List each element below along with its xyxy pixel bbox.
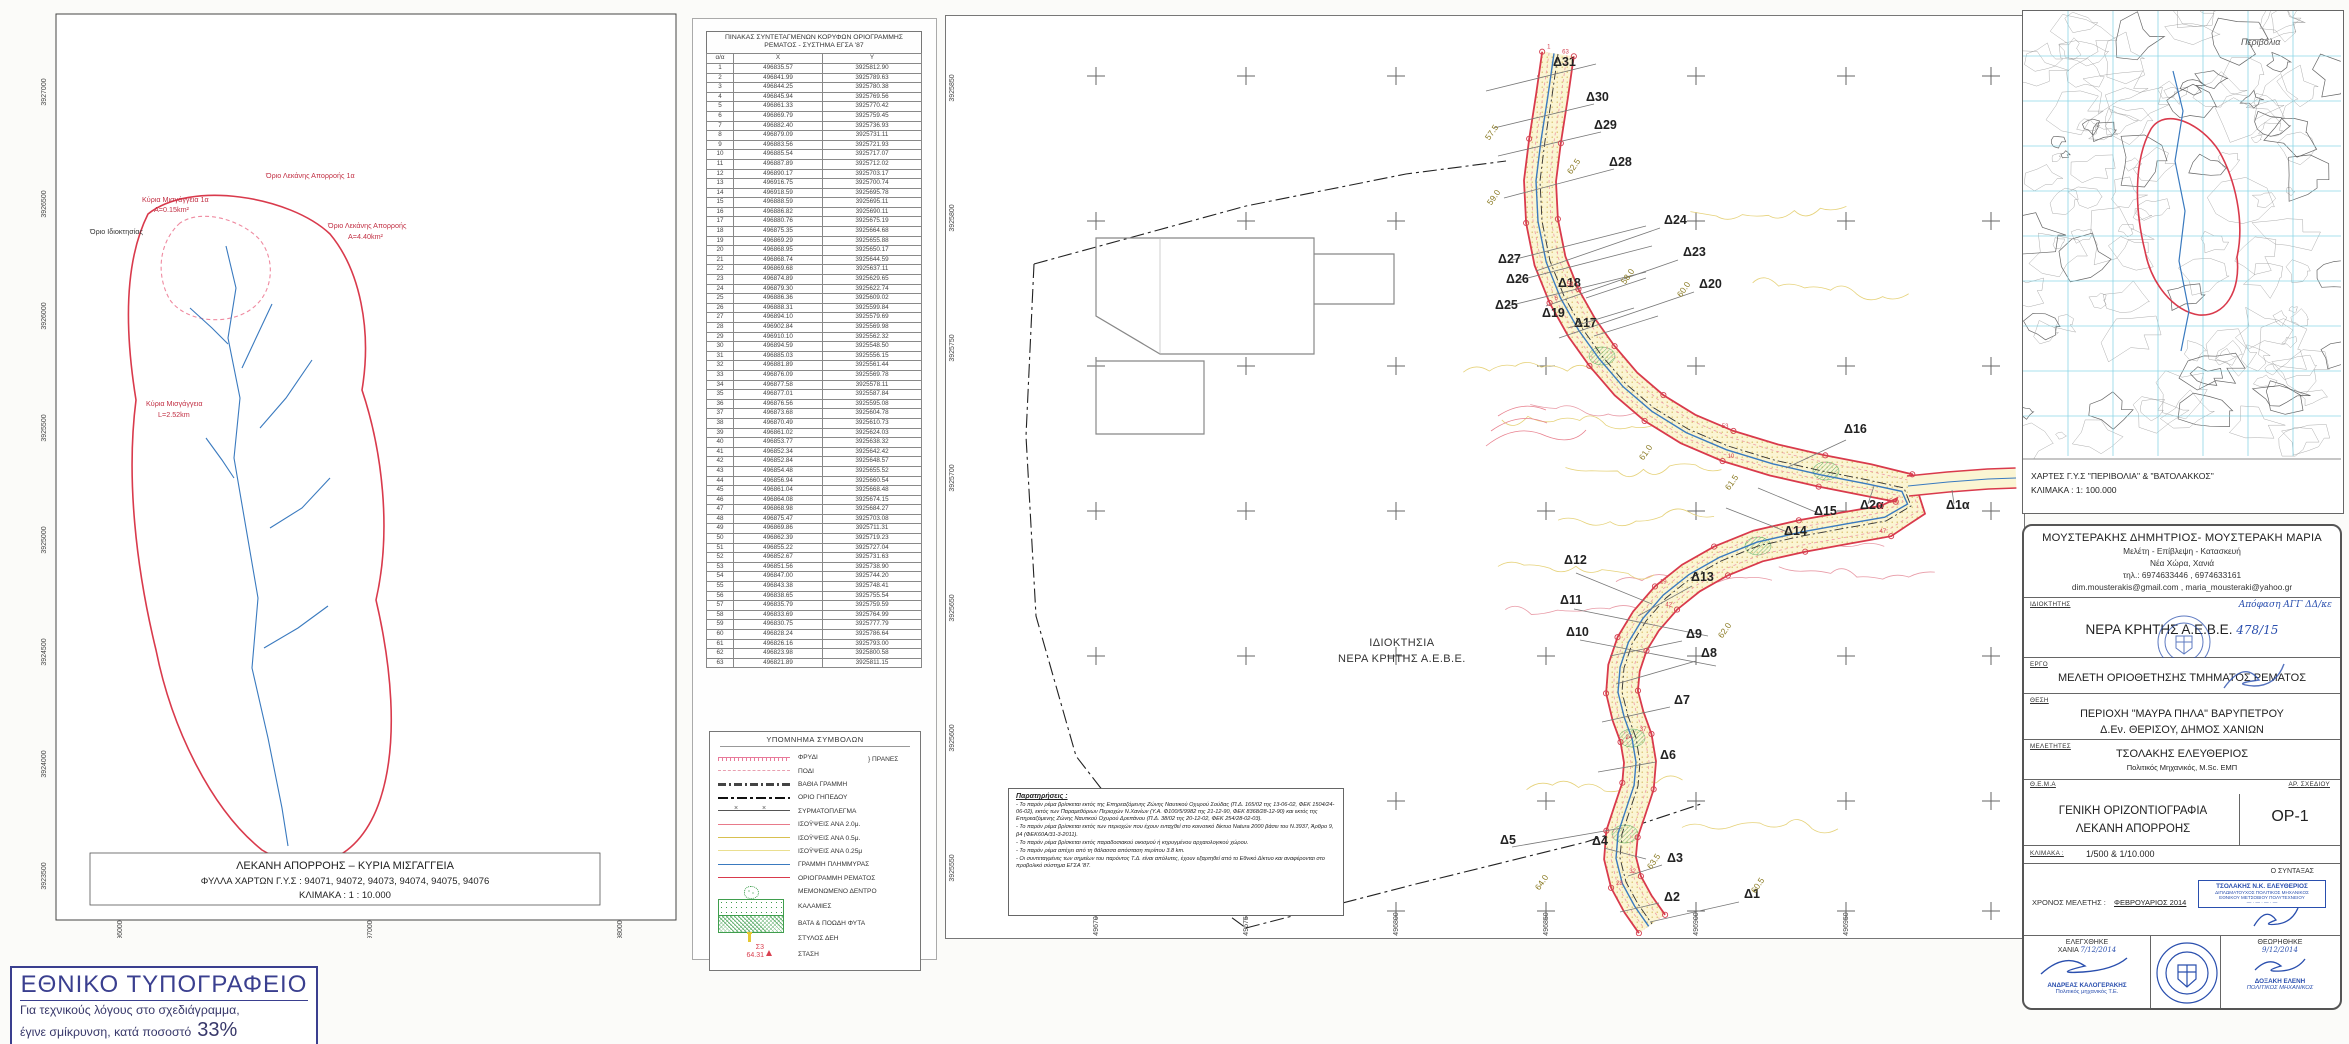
- legend-item-contour-2m: ΙΣΟΫΨΕΙΣ ΑΝΑ 2.0μ.: [710, 818, 920, 831]
- svg-text:Δ2: Δ2: [1664, 890, 1680, 904]
- coordinate-row: 61496826.163925793.00: [707, 639, 922, 649]
- coordinate-row: 8496879.093925731.11: [707, 131, 922, 141]
- coordinate-row: 47496868.983925684.27: [707, 505, 922, 515]
- svg-text:ΧΑΡΤΕΣ Γ.Υ.Σ "ΠΕΡΙΒΟΛΙΑ" & "ΒΑ: ΧΑΡΤΕΣ Γ.Υ.Σ "ΠΕΡΙΒΟΛΙΑ" & "ΒΑΤΟΛΑΚΚΟΣ": [2031, 471, 2214, 481]
- checked-signature: [2027, 954, 2147, 980]
- approved-signature: [2225, 954, 2335, 976]
- svg-text:3924500: 3924500: [41, 638, 48, 665]
- coordinate-row: 7496882.403925736.93: [707, 121, 922, 131]
- svg-text:Κύρια Μισγάγγεια: Κύρια Μισγάγγεια: [146, 399, 202, 408]
- coordinate-row: 32496881.893925561.44: [707, 361, 922, 371]
- svg-text:496950: 496950: [1843, 912, 1850, 935]
- coordinate-row: 38496870.493925610.73: [707, 418, 922, 428]
- property-label: ΙΔΙΟΚΤΗΣΙΑ ΝΕΡΑ ΚΡΗΤΗΣ Α.Ε.Β.Ε.: [1338, 636, 1466, 668]
- coordinate-row: 23496874.893925629.65: [707, 275, 922, 285]
- svg-text:28: 28: [1616, 881, 1623, 887]
- svg-text:37: 37: [1640, 727, 1647, 733]
- slope-group-label: } ΠΡΑΝΕΣ: [868, 756, 898, 763]
- drawing-number: ΟΡ-1: [2240, 808, 2340, 826]
- coordinate-row: 13496916.753925700.74: [707, 179, 922, 189]
- drawing-number-cell: ΟΡ-1: [2239, 794, 2340, 845]
- stream-corridor: [1524, 52, 2016, 934]
- coordinate-row: 34496877.583925578.11: [707, 380, 922, 390]
- svg-text:3925800: 3925800: [949, 204, 956, 231]
- reduction-percent: 33%: [197, 1019, 237, 1041]
- svg-text:3925850: 3925850: [949, 74, 956, 101]
- svg-text:3926000: 3926000: [41, 302, 48, 329]
- svg-text:Δ11: Δ11: [1560, 593, 1582, 607]
- svg-text:Δ26: Δ26: [1506, 272, 1529, 286]
- coordinate-row: 50496862.393925719.23: [707, 534, 922, 544]
- author-signature: [2024, 864, 2342, 936]
- coordinate-row: 30496894.593925548.50: [707, 342, 922, 352]
- coordinate-row: 2496841.993925789.63: [707, 73, 922, 83]
- svg-text:3925550: 3925550: [949, 854, 956, 881]
- svg-text:496900: 496900: [1693, 912, 1700, 935]
- svg-text:3925700: 3925700: [949, 464, 956, 491]
- svg-text:497000: 497000: [367, 920, 374, 938]
- title-block: ΜΟΥΣΤΕΡΑΚΗΣ ΔΗΜΗΤΡΙΟΣ- ΜΟΥΣΤΕΡΑΚΗ ΜΑΡΙΑ …: [2022, 524, 2342, 1010]
- svg-text:3926500: 3926500: [41, 190, 48, 217]
- svg-text:L=2.52km: L=2.52km: [158, 410, 190, 419]
- legend-item-brambles: ΒΑΤΑ & ΠΟΩΔΗ ΦΥΤΑ: [710, 915, 920, 932]
- legend-item-wire-fence: ××ΣΥΡΜΑΤΟΠΛΕΓΜΑ: [710, 805, 920, 818]
- svg-text:496850: 496850: [1543, 912, 1550, 935]
- company-name: ΜΟΥΣΤΕΡΑΚΗΣ ΔΗΜΗΤΡΙΟΣ- ΜΟΥΣΤΕΡΑΚΗ ΜΑΡΙΑ: [2024, 532, 2340, 544]
- svg-text:3925500: 3925500: [41, 414, 48, 441]
- signature-scribble: [2024, 658, 2342, 694]
- svg-text:53: 53: [1722, 424, 1729, 430]
- coordinate-panel: ΠΙΝΑΚΑΣ ΣΥΝΤΕΤΑΓΜΕΝΩΝ ΚΟΡΥΦΩΝ ΟΡΙΟΓΡΑΜΜΗ…: [692, 18, 937, 960]
- scale-row: ΚΛΙΜΑΚΑ : 1/500 & 1/10.000: [2024, 846, 2340, 864]
- coordinate-row: 35496877.013925587.84: [707, 390, 922, 400]
- drawing-no-label: ΑΡ. ΣΧΕΔΙΟΥ: [2288, 781, 2330, 788]
- svg-text:ΛΕΚΑΝΗ ΑΠΟΡΡΟΗΣ – ΚΥΡΙΑ ΜΙΣΓΑΓ: ΛΕΚΑΝΗ ΑΠΟΡΡΟΗΣ – ΚΥΡΙΑ ΜΙΣΓΑΓΓΕΙΑ: [236, 860, 455, 872]
- coordinate-row: 6496869.793925759.45: [707, 111, 922, 121]
- location-map: ΠεριβόλιαΧΑΡΤΕΣ Γ.Υ.Σ "ΠΕΡΙΒΟΛΙΑ" & "ΒΑΤ…: [2023, 11, 2341, 511]
- svg-text:Δ15: Δ15: [1814, 504, 1837, 518]
- coordinate-row: 18496875.353925664.68: [707, 227, 922, 237]
- svg-text:498000: 498000: [617, 920, 624, 938]
- coordinate-row: 39496861.023925624.03: [707, 428, 922, 438]
- svg-text:Δ19: Δ19: [1542, 306, 1565, 320]
- coordinate-table: ΠΙΝΑΚΑΣ ΣΥΝΤΕΤΑΓΜΕΝΩΝ ΚΟΡΥΦΩΝ ΟΡΙΟΓΡΑΜΜΗ…: [706, 31, 922, 668]
- note-item: - Το παρόν ρέμα απέχει από τη θάλασσα απ…: [1016, 848, 1336, 855]
- svg-text:Α=0.15km²: Α=0.15km²: [154, 205, 190, 214]
- signatures-row: ΕΛΕΓΧΘΗΚΕ ΧΑΝΙΑ 7/12/2014 ΑΝΔΡΕΑΣ ΚΑΛΟΓΕ…: [2024, 936, 2340, 1008]
- title-block-panel: ΜΟΥΣΤΕΡΑΚΗΣ ΔΗΜΗΤΡΙΟΣ- ΜΟΥΣΤΕΡΑΚΗ ΜΑΡΙΑ …: [2022, 524, 2342, 1010]
- company-services: Μελέτη - Επίβλεψη - Κατασκευή: [2024, 546, 2340, 556]
- designer-row: ΜΕΛΕΤΗΤΕΣ ΤΣΟΛΑΚΗΣ ΕΛΕΥΘΕΡΙΟΣ Πολιτικός …: [2024, 740, 2340, 780]
- svg-text:Δ23: Δ23: [1683, 245, 1706, 259]
- location-map-panel: ΠεριβόλιαΧΑΡΤΕΣ Γ.Υ.Σ "ΠΕΡΙΒΟΛΙΑ" & "ΒΑΤ…: [2022, 10, 2344, 514]
- author-row: Ο ΣΥΝΤΑΞΑΣ ΧΡΟΝΟΣ ΜΕΛΕΤΗΣ : ΦΕΒΡΟΥΑΡΙΟΣ …: [2024, 864, 2340, 936]
- coordinate-row: 9496883.563925721.93: [707, 140, 922, 150]
- scale-value: 1/500 & 1/10.000: [2086, 849, 2155, 859]
- svg-text:58.0: 58.0: [1619, 266, 1637, 286]
- subject-row: ΓΕΝΙΚΗ ΟΡΙΖΟΝΤΙΟΓΡΑΦΙΑ ΛΕΚΑΝΗ ΑΠΟΡΡΟΗΣ Ο…: [2024, 794, 2340, 846]
- coordinate-row: 24496879.303925622.74: [707, 284, 922, 294]
- coordinate-row: 40496853.773925638.32: [707, 438, 922, 448]
- location-label: ΘΕΣΗ: [2030, 697, 2049, 704]
- svg-text:15: 15: [1886, 499, 1893, 505]
- coordinate-row: 16496886.823925690.11: [707, 207, 922, 217]
- svg-text:60.5: 60.5: [1749, 875, 1767, 895]
- legend-item-plot-boundary: ΟΡΙΟ ΓΗΠΕΔΟΥ: [710, 791, 920, 804]
- coordinate-row: 57496835.793925759.59: [707, 601, 922, 611]
- coordinate-row: 27496894.103925579.69: [707, 313, 922, 323]
- svg-text:Α=4.40km²: Α=4.40km²: [348, 232, 384, 241]
- svg-text:Δ1α: Δ1α: [1946, 498, 1970, 512]
- coordinate-row: 48496875.473925703.08: [707, 514, 922, 524]
- building-outline: [1096, 238, 1394, 434]
- stamp-line2: έγινε σμίκρυνση, κατά ποσοστό33%: [20, 1019, 308, 1042]
- svg-text:Δ6: Δ6: [1660, 748, 1676, 762]
- svg-text:Δ29: Δ29: [1594, 118, 1617, 132]
- legend-item-contour-05m: ΙΣΟΫΨΕΙΣ ΑΝΑ 0.5μ.: [710, 831, 920, 844]
- note-item: - Οι συντεταγμένες των σημείων του παρόν…: [1016, 856, 1336, 870]
- legend-item-deep-line: ΒΑΘΙΑ ΓΡΑΜΜΗ: [710, 778, 920, 791]
- coordinate-row: 25496886.363925609.02: [707, 294, 922, 304]
- note-item: - Το παρόν ρέμα βρίσκεται εκτός παραδοσι…: [1016, 840, 1336, 847]
- coordinate-row: 58496833.693925764.99: [707, 610, 922, 620]
- coordinate-row: 19496869.293925655.88: [707, 236, 922, 246]
- coordinate-row: 26496888.313925599.84: [707, 303, 922, 313]
- symbol-legend: ΥΠΟΜΝΗΜΑ ΣΥΜΒΟΛΩΝ ΦΡΥΔΙΠΟΔΙΒΑΘΙΑ ΓΡΑΜΜΗΟ…: [709, 731, 921, 971]
- svg-text:Κύρια Μισγάγγεια 1α: Κύρια Μισγάγγεια 1α: [142, 195, 209, 204]
- coordinate-row: 10496885.543925717.07: [707, 150, 922, 160]
- svg-text:Δ31: Δ31: [1553, 55, 1576, 69]
- svg-text:Δ24: Δ24: [1664, 213, 1687, 227]
- watershed-map: Κύρια Μισγάγγεια 1αΑ=0.15km²Όριο Ιδιοκτη…: [30, 8, 680, 938]
- watershed-map-panel: Κύρια Μισγάγγεια 1αΑ=0.15km²Όριο Ιδιοκτη…: [30, 8, 680, 938]
- coordinate-row: 17496880.763925675.19: [707, 217, 922, 227]
- coordinate-row: 44496856.943925660.54: [707, 476, 922, 486]
- stamp-title: ΕΘΝΙΚΟ ΤΥΠΟΓΡΑΦΕΙΟ: [20, 971, 308, 1001]
- scale-label: ΚΛΙΜΑΚΑ :: [2030, 850, 2064, 857]
- coordinate-row: 36496876.563925595.08: [707, 399, 922, 409]
- svg-text:63: 63: [1562, 49, 1569, 55]
- svg-text:496800: 496800: [1393, 912, 1400, 935]
- coordinate-row: 15496888.593925695.11: [707, 198, 922, 208]
- svg-text:59.0: 59.0: [1485, 187, 1503, 207]
- coordinate-row: 31496885.033925556.15: [707, 351, 922, 361]
- svg-text:Δ20: Δ20: [1699, 277, 1722, 291]
- svg-text:64.0: 64.0: [1533, 872, 1551, 892]
- company-phone: τηλ.: 6974633446 , 6974633161: [2024, 570, 2340, 580]
- svg-text:3925750: 3925750: [949, 334, 956, 361]
- designer-name: ΤΣΟΛΑΚΗΣ ΕΛΕΥΘΕΡΙΟΣ: [2024, 748, 2340, 760]
- coordinate-row: 51496855.223925727.04: [707, 543, 922, 553]
- checked-block: ΕΛΕΓΧΘΗΚΕ ΧΑΝΙΑ 7/12/2014 ΑΝΔΡΕΑΣ ΚΑΛΟΓΕ…: [2024, 939, 2150, 995]
- coordinate-row: 4496845.943925769.56: [707, 92, 922, 102]
- svg-text:Δ7: Δ7: [1674, 693, 1690, 707]
- coordinate-row: 43496854.483925655.52: [707, 466, 922, 476]
- coordinate-row: 20496868.953925650.17: [707, 246, 922, 256]
- legend-item-contour-025m: ΙΣΟΫΨΕΙΣ ΑΝΑ 0.25μ: [710, 845, 920, 858]
- note-item: - Το παρόν ρέμα βρίσκεται εκτός της Επηρ…: [1016, 802, 1336, 823]
- approved-block: ΘΕΩΡΗΘΗΚΕ 9/12/2014 ΔΟΞΑΚΗ ΕΛΕΝΗ ΠΟΛΙΤΙΚ…: [2220, 939, 2340, 991]
- coordinate-row: 60496828.243925786.64: [707, 630, 922, 640]
- svg-text:57.5: 57.5: [1483, 122, 1501, 142]
- svg-text:62.5: 62.5: [1565, 156, 1583, 176]
- project-row: ΕΡΓΟ ΜΕΛΕΤΗ ΟΡΙΟΘΕΤΗΣΗΣ ΤΜΗΜΑΤΟΣ ΡΕΜΑΤΟΣ: [2024, 658, 2340, 694]
- coordinate-row: 21496868.743925644.59: [707, 255, 922, 265]
- coordinate-row: 29496910.103925562.32: [707, 332, 922, 342]
- svg-text:62.0: 62.0: [1716, 620, 1734, 640]
- coordinate-row: 62496823.983925800.58: [707, 649, 922, 659]
- svg-text:Δ5: Δ5: [1500, 833, 1516, 847]
- coordinate-row: 55496843.383925748.41: [707, 582, 922, 592]
- location-value: ΠΕΡΙΟΧΗ "ΜΑΥΡΑ ΠΗΛΑ" ΒΑΡΥΠΕΤΡΟΥ Δ.Εν. ΘΕ…: [2024, 706, 2340, 738]
- coordinate-row: 49496869.863925711.31: [707, 524, 922, 534]
- coordinate-row: 11496887.893925712.02: [707, 159, 922, 169]
- coordinate-row: 12496890.173925703.17: [707, 169, 922, 179]
- svg-text:Όριο Λεκάνης Απορροής: Όριο Λεκάνης Απορροής: [327, 221, 407, 230]
- svg-text:Δ25: Δ25: [1495, 298, 1518, 312]
- svg-text:Όριο Ιδιοκτησίας: Όριο Ιδιοκτησίας: [89, 227, 143, 236]
- legend-item-tree: ΜΕΜΟΝΩΜΕΝΟ ΔΕΝΤΡΟ: [710, 885, 920, 898]
- owner-row: ΙΔΙΟΚΤΗΤΗΣ ΝΕΡΑ ΚΡΗΤΗΣ Α.Ε.Β.Ε. 478/15 Α…: [2024, 598, 2340, 658]
- legend-item-stream-boundary: ΟΡΙΟΓΡΑΜΜΗ ΡΕΜΑΤΟΣ: [710, 872, 920, 885]
- coordinate-row: 54496847.003925744.20: [707, 572, 922, 582]
- legend-item-slope-toe: ΠΟΔΙ: [710, 764, 920, 777]
- coordinate-row: 45496861.043925668.48: [707, 486, 922, 496]
- svg-text:Δ13: Δ13: [1691, 570, 1714, 584]
- svg-text:47: 47: [1879, 529, 1886, 535]
- svg-text:Δ9: Δ9: [1686, 627, 1702, 641]
- svg-text:Δ12: Δ12: [1564, 553, 1587, 567]
- coordinate-row: 63496821.893925811.15: [707, 658, 922, 668]
- svg-text:3925650: 3925650: [949, 594, 956, 621]
- svg-text:Όριο Λεκάνης Απορροής 1α: Όριο Λεκάνης Απορροής 1α: [265, 171, 355, 180]
- svg-text:3924000: 3924000: [41, 750, 48, 777]
- svg-text:63.5: 63.5: [1645, 851, 1663, 871]
- svg-text:61.0: 61.0: [1637, 442, 1655, 462]
- coordinate-row: 59496830.753925777.79: [707, 620, 922, 630]
- svg-text:61.5: 61.5: [1723, 472, 1741, 492]
- coordinate-row: 37496873.683925604.78: [707, 409, 922, 419]
- legend-item-reeds: ΚΑΛΑΜΙΕΣ: [710, 898, 920, 915]
- company-address: Νέα Χώρα, Χανιά: [2024, 558, 2340, 568]
- svg-text:Δ2α: Δ2α: [1860, 498, 1884, 512]
- svg-text:19: 19: [1660, 579, 1667, 585]
- location-map-caption: ΧΑΡΤΕΣ Γ.Υ.Σ "ΠΕΡΙΒΟΛΙΑ" & "ΒΑΤΟΛΑΚΚΟΣ"Κ…: [2023, 459, 2341, 511]
- coordinate-row: 42496852.843925648.57: [707, 457, 922, 467]
- svg-text:10: 10: [1728, 454, 1735, 460]
- svg-text:ΦΥΛΛΑ ΧΑΡΤΩΝ Γ.Υ.Σ : 94071, 94: ΦΥΛΛΑ ΧΑΡΤΩΝ Γ.Υ.Σ : 94071, 94072, 94073…: [201, 876, 490, 887]
- location-row: ΘΕΣΗ ΠΕΡΙΟΧΗ "ΜΑΥΡΑ ΠΗΛΑ" ΒΑΡΥΠΕΤΡΟΥ Δ.Ε…: [2024, 694, 2340, 740]
- svg-text:ΚΛΙΜΑΚΑ : 1 : 10.000: ΚΛΙΜΑΚΑ : 1 : 10.000: [299, 890, 391, 901]
- site-plan-panel: Δ31Δ30Δ29Δ28Δ27Δ26Δ25Δ24Δ23Δ20Δ18Δ17Δ19Δ…: [945, 15, 2025, 939]
- drawing-sheet: Κύρια Μισγάγγεια 1αΑ=0.15km²Όριο Ιδιοκτη…: [0, 0, 2349, 1044]
- svg-text:60.0: 60.0: [1675, 279, 1693, 299]
- svg-text:496000: 496000: [117, 920, 124, 938]
- note-item: - Το παρόν ρέμα βρίσκεται εκτός των περι…: [1016, 824, 1336, 838]
- coordinate-row: 5496861.333925770.42: [707, 102, 922, 112]
- coordinate-row: 33496876.093925569.78: [707, 370, 922, 380]
- svg-text:Δ27: Δ27: [1498, 252, 1521, 266]
- svg-text:3927000: 3927000: [41, 78, 48, 105]
- coordinate-table-title: ΠΙΝΑΚΑΣ ΣΥΝΤΕΤΑΓΜΕΝΩΝ ΚΟΡΥΦΩΝ ΟΡΙΟΓΡΑΜΜΗ…: [706, 31, 922, 53]
- svg-text:Δ4: Δ4: [1592, 834, 1608, 848]
- svg-text:Δ16: Δ16: [1844, 422, 1867, 436]
- svg-text:24: 24: [1626, 735, 1633, 741]
- coordinate-row: 1496835.573925812.90: [707, 63, 922, 73]
- divider: [2150, 936, 2151, 1008]
- legend-title: ΥΠΟΜΝΗΜΑ ΣΥΜΒΟΛΩΝ: [720, 735, 910, 747]
- svg-text:3925000: 3925000: [41, 526, 48, 553]
- coordinate-row: 41496852.343925642.42: [707, 447, 922, 457]
- svg-text:Δ3: Δ3: [1667, 851, 1683, 865]
- company-block: ΜΟΥΣΤΕΡΑΚΗΣ ΔΗΜΗΤΡΙΟΣ- ΜΟΥΣΤΕΡΑΚΗ ΜΑΡΙΑ …: [2024, 526, 2340, 598]
- svg-text:Δ14: Δ14: [1784, 524, 1807, 538]
- svg-text:3923500: 3923500: [41, 862, 48, 889]
- legend-item-flood-line: ΓΡΑΜΜΗ ΠΛΗΜΜΥΡΑΣ: [710, 858, 920, 871]
- notes-title: Παρατηρήσεις :: [1016, 793, 1336, 800]
- national-printing-office-stamp: ΕΘΝΙΚΟ ΤΥΠΟΓΡΑΦΕΙΟ Για τεχνικούς λόγους …: [10, 966, 318, 1044]
- svg-text:Δ8: Δ8: [1701, 646, 1717, 660]
- notes-box: Παρατηρήσεις : - Το παρόν ρέμα βρίσκεται…: [1008, 788, 1344, 916]
- subject-header-row: Θ.Ε.Μ.Α ΑΡ. ΣΧΕΔΙΟΥ: [2024, 780, 2340, 794]
- stamp-line1: Για τεχνικούς λόγους στο σχεδιάγραμμα,: [20, 1003, 308, 1017]
- map-caption: ΛΕΚΑΝΗ ΑΠΟΡΡΟΗΣ – ΚΥΡΙΑ ΜΙΣΓΑΓΓΕΙΑΦΥΛΛΑ …: [90, 853, 600, 905]
- coordinate-row: 52496852.673925731.63: [707, 553, 922, 563]
- round-stamp-overlay: [2024, 598, 2342, 658]
- designer-title: Πολιτικός Μηχανικός, M.Sc. ΕΜΠ: [2024, 763, 2340, 772]
- drawing-subject: ΓΕΝΙΚΗ ΟΡΙΖΟΝΤΙΟΓΡΑΦΙΑ ΛΕΚΑΝΗ ΑΠΟΡΡΟΗΣ: [2024, 802, 2242, 839]
- svg-text:Δ10: Δ10: [1566, 625, 1589, 639]
- svg-text:3925600: 3925600: [949, 724, 956, 751]
- coordinate-row: 56496838.653925755.54: [707, 591, 922, 601]
- coordinate-table-header: α/α Χ Υ: [707, 53, 922, 63]
- coordinate-row: 46496864.083925674.15: [707, 495, 922, 505]
- svg-text:1: 1: [1547, 45, 1551, 51]
- svg-text:Περιβόλια: Περιβόλια: [2241, 37, 2281, 47]
- svg-text:Δ28: Δ28: [1609, 155, 1632, 169]
- svg-text:32: 32: [1629, 869, 1636, 875]
- company-emails: dim.mousterakis@gmail.com , maria_mouste…: [2024, 582, 2340, 592]
- svg-text:Δ30: Δ30: [1586, 90, 1609, 104]
- legend-item-station: Σ364.31ΣΤΑΣΗ: [710, 946, 920, 963]
- coordinate-row: 53496851.563925738.90: [707, 562, 922, 572]
- hellenic-republic-stamp: [2152, 938, 2222, 1008]
- coordinate-row: 14496918.593925695.78: [707, 188, 922, 198]
- svg-text:42: 42: [1665, 603, 1672, 609]
- coordinate-row: 28496902.843925569.98: [707, 323, 922, 333]
- coordinate-row: 3496844.253925780.38: [707, 83, 922, 93]
- coordinate-row: 22496869.683925637.11: [707, 265, 922, 275]
- subject-label: Θ.Ε.Μ.Α: [2030, 781, 2056, 788]
- svg-text:58: 58: [1567, 282, 1574, 288]
- svg-text:ΚΛΙΜΑΚΑ : 1: 100.000: ΚΛΙΜΑΚΑ : 1: 100.000: [2031, 485, 2117, 495]
